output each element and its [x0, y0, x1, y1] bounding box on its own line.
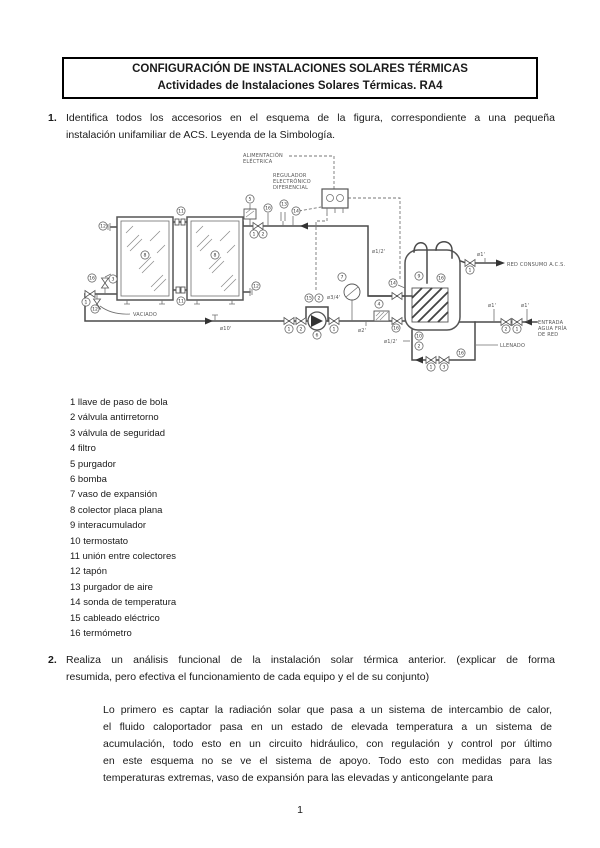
text-line: en este esquema no se ve el sistema de a… — [103, 753, 552, 770]
marker-number: 16 — [393, 326, 399, 332]
marker-number: 1 — [430, 365, 433, 371]
marker-number: 14 — [390, 281, 396, 287]
marker-number: 10 — [416, 334, 422, 340]
regulator-box — [322, 189, 348, 213]
text-line: Realiza un análisis funcional de la inst… — [66, 652, 555, 669]
question-2: 2. Realiza un análisis funcional de la i… — [48, 652, 555, 685]
page-number: 1 — [0, 804, 600, 816]
marker-number: 1 — [516, 327, 519, 333]
marker-number: 16 — [438, 276, 444, 282]
label-d1a: ø1' — [477, 252, 485, 258]
question-1-number: 1. — [48, 110, 66, 143]
text-line: 10 termostato — [70, 534, 176, 549]
marker-number: 12 — [92, 307, 98, 313]
label-d1c: ø1' — [521, 303, 529, 309]
marker-number: 7 — [341, 275, 344, 281]
text-line: 8 colector placa plana — [70, 503, 176, 518]
question-1: 1. Identifica todos los accesorios en el… — [48, 110, 555, 143]
marker-number: 16 — [265, 206, 271, 212]
text-line: 11 unión entre colectores — [70, 549, 176, 564]
leader-ticks — [212, 258, 527, 345]
question-2-text: Realiza un análisis funcional de la inst… — [66, 652, 555, 685]
text-line: 2 válvula antirretorno — [70, 410, 176, 425]
text-line: 6 bomba — [70, 472, 176, 487]
marker-number: 11 — [178, 209, 184, 215]
marker-number: 4 — [378, 302, 381, 308]
marker-number: 8 — [214, 253, 217, 259]
marker-number: 6 — [316, 333, 319, 339]
solar-collector-right — [187, 217, 243, 304]
text-line: 15 cableado eléctrico — [70, 611, 176, 626]
text-line: 1 llave de paso de bola — [70, 395, 176, 410]
marker-number: 2 — [300, 327, 303, 333]
label-d2: ø2' — [358, 328, 366, 334]
marker-number: 1 — [469, 268, 472, 274]
label-red-consumo: RED CONSUMO A.C.S. — [507, 262, 565, 268]
text-line: temperaturas extremas, vaso de expansión… — [103, 770, 552, 787]
text-line: 9 interacumulador — [70, 518, 176, 533]
label-d34: ø3/4' — [327, 295, 340, 301]
marker-number: 15 — [306, 296, 312, 302]
svg-text:DE RED: DE RED — [538, 332, 558, 338]
text-line: 14 sonda de temperatura — [70, 595, 176, 610]
text-line: 16 termómetro — [70, 626, 176, 641]
marker-number: 1 — [85, 300, 88, 306]
text-line: 3 válvula de seguridad — [70, 426, 176, 441]
marker-number: 1 — [333, 327, 336, 333]
text-line: resumida, pero efectiva el funcionamient… — [66, 669, 555, 686]
text-line: 12 tapón — [70, 564, 176, 579]
text-line: instalación unifamiliar de ACS. Leyenda … — [66, 127, 555, 144]
marker-number: 12 — [100, 224, 106, 230]
svg-text:ELECTRÓNICO: ELECTRÓNICO — [273, 178, 311, 185]
expansion-vessel — [344, 284, 360, 321]
label-vaciado: VACIADO — [133, 312, 157, 318]
label-d12b: ø1/2' — [384, 339, 397, 345]
pump — [306, 307, 328, 330]
marker-number: 16 — [89, 276, 95, 282]
text-line: 13 purgador de aire — [70, 580, 176, 595]
text-line: acumulación, todo esto en un circuito hi… — [103, 736, 552, 753]
solar-collector-left — [117, 217, 173, 304]
marker-number: 2 — [418, 344, 421, 350]
marker-number: 8 — [144, 253, 147, 259]
label-d10: ø10' — [220, 326, 232, 332]
marker-number: 2 — [505, 327, 508, 333]
text-line: 4 filtro — [70, 441, 176, 456]
filter-near-tank — [374, 311, 389, 321]
svg-text:AGUA FRÍA: AGUA FRÍA — [538, 325, 567, 332]
marker-number: 12 — [253, 284, 259, 290]
question-1-text: Identifica todos los accesorios en el es… — [66, 110, 555, 143]
marker-number: 11 — [178, 299, 184, 305]
symbol-legend: 1 llave de paso de bola2 válvula antirre… — [70, 395, 176, 642]
marker-number: 5 — [249, 197, 252, 203]
marker-number: 2 — [262, 232, 265, 238]
marker-number: 1 — [288, 327, 291, 333]
svg-text:DIFERENCIAL: DIFERENCIAL — [273, 185, 308, 191]
svg-text:ELÉCTRICA: ELÉCTRICA — [243, 157, 273, 165]
label-d12a: ø1/2' — [372, 249, 385, 255]
marker-number: 13 — [281, 202, 287, 208]
collector-unions — [175, 219, 185, 293]
label-alimentacion: ALIMENTACIÓN — [243, 152, 283, 159]
marker-number: 16 — [458, 351, 464, 357]
heat-exchanger-coil — [412, 288, 448, 322]
marker-number: 3 — [112, 277, 115, 283]
text-line: Identifica todos los accesorios en el es… — [66, 110, 555, 127]
text-line: el fluido caloportador pasa en un estado… — [103, 719, 552, 736]
solar-installation-diagram: ALIMENTACIÓN ELÉCTRICA REGULADOR ELECTRÓ… — [60, 145, 580, 390]
document-subtitle: Actividades de Instalaciones Solares Tér… — [64, 78, 536, 95]
document-title: CONFIGURACIÓN DE INSTALACIONES SOLARES T… — [64, 61, 536, 78]
marker-number: 14 — [293, 209, 299, 215]
text-line: 5 purgador — [70, 457, 176, 472]
text-line: Lo primero es captar la radiación solar … — [103, 702, 552, 719]
label-d1b: ø1' — [488, 303, 496, 309]
text-line: 7 vaso de expansión — [70, 487, 176, 502]
marker-number: 2 — [318, 296, 321, 302]
document-title-box: CONFIGURACIÓN DE INSTALACIONES SOLARES T… — [62, 57, 538, 99]
label-llenado: LLENADO — [500, 343, 525, 349]
answer-paragraph: Lo primero es captar la radiación solar … — [103, 702, 552, 787]
question-2-number: 2. — [48, 652, 66, 685]
marker-number: 1 — [253, 232, 256, 238]
marker-number: 9 — [418, 274, 421, 280]
marker-number: 3 — [443, 365, 446, 371]
